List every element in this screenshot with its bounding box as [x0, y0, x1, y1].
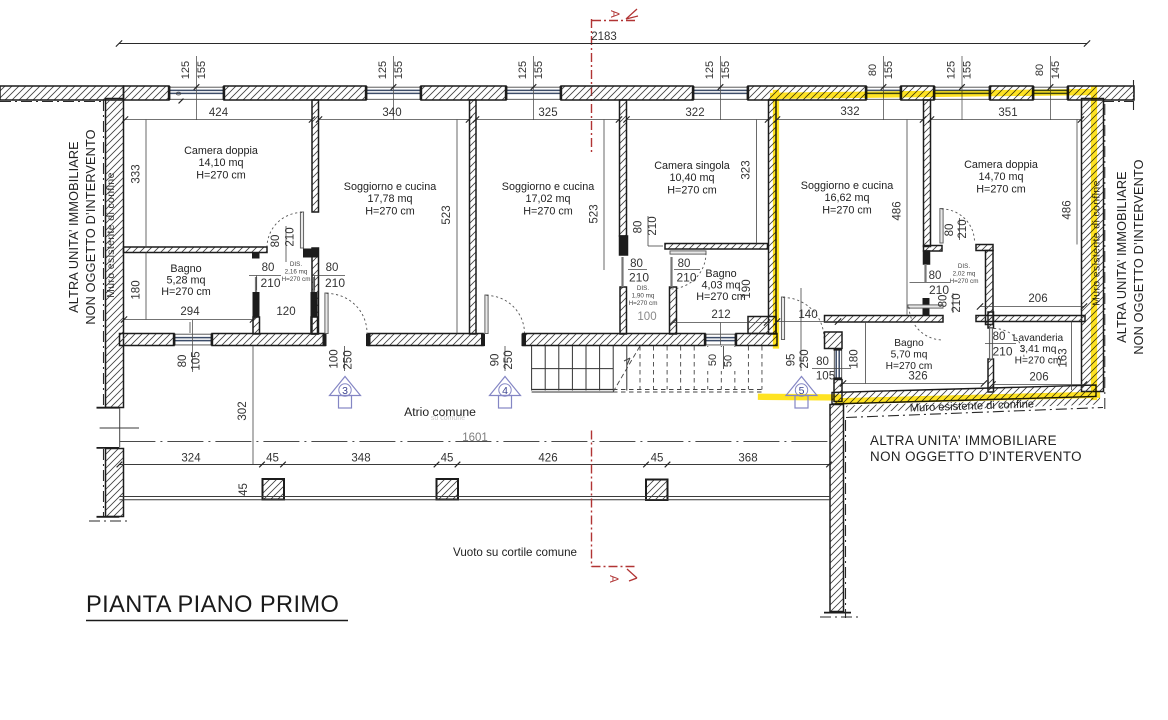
svg-text:10,40 mq: 10,40 mq: [669, 172, 714, 184]
svg-text:155: 155: [720, 61, 732, 79]
svg-text:80: 80: [326, 262, 339, 274]
svg-text:45: 45: [266, 453, 279, 465]
svg-text:340: 340: [382, 107, 401, 119]
svg-text:80: 80: [262, 262, 275, 274]
svg-text:155: 155: [962, 61, 974, 79]
svg-text:H=270 cm: H=270 cm: [365, 205, 415, 217]
svg-text:105: 105: [191, 351, 203, 370]
svg-text:210: 210: [951, 293, 963, 312]
svg-text:80: 80: [633, 221, 645, 234]
svg-text:Camera doppia: Camera doppia: [964, 159, 1038, 171]
svg-text:323: 323: [741, 160, 753, 179]
svg-text:Soggiorno e cucina: Soggiorno e cucina: [344, 181, 436, 193]
svg-text:H=270 cm: H=270 cm: [196, 169, 246, 181]
svg-text:Muro esistente di confine: Muro esistente di confine: [106, 172, 117, 298]
svg-text:5,28 mq: 5,28 mq: [166, 275, 205, 287]
svg-text:206: 206: [1028, 293, 1047, 305]
svg-text:su comune: su comune: [431, 415, 465, 422]
svg-text:16,62 mq: 16,62 mq: [824, 192, 869, 204]
svg-text:Soggiorno e cucina: Soggiorno e cucina: [502, 181, 594, 193]
svg-text:145: 145: [1050, 61, 1062, 79]
svg-text:ALTRA UNITA’ IMMOBILIARE: ALTRA UNITA’ IMMOBILIARE: [67, 141, 81, 313]
svg-text:H=270 cm: H=270 cm: [667, 184, 717, 196]
svg-text:50: 50: [707, 354, 719, 366]
svg-text:424: 424: [209, 107, 229, 119]
svg-text:Lavanderia: Lavanderia: [1013, 333, 1064, 344]
svg-text:426: 426: [538, 453, 557, 465]
svg-text:NON OGGETTO D’INTERVENTO: NON OGGETTO D’INTERVENTO: [84, 129, 98, 324]
svg-text:45: 45: [441, 453, 454, 465]
svg-text:105: 105: [816, 371, 835, 383]
svg-text:210: 210: [957, 219, 969, 238]
svg-text:180: 180: [131, 280, 143, 299]
svg-text:PIANTA PIANO PRIMO: PIANTA PIANO PRIMO: [86, 592, 339, 618]
svg-text:Soggiorno e cucina: Soggiorno e cucina: [801, 180, 893, 192]
svg-text:80: 80: [944, 224, 956, 237]
svg-text:80: 80: [630, 258, 643, 270]
svg-text:80: 80: [938, 295, 950, 308]
svg-text:155: 155: [533, 61, 545, 79]
svg-text:Camera singola: Camera singola: [654, 160, 730, 172]
svg-text:95: 95: [786, 354, 798, 367]
svg-text:155: 155: [393, 61, 405, 79]
svg-text:H=270 cm: H=270 cm: [696, 291, 746, 303]
svg-text:A: A: [607, 575, 619, 583]
svg-text:80: 80: [177, 355, 189, 368]
svg-text:324: 324: [181, 453, 201, 465]
svg-text:180: 180: [849, 349, 861, 368]
svg-text:DIS.: DIS.: [958, 263, 970, 270]
svg-text:14,70 mq: 14,70 mq: [978, 171, 1023, 183]
svg-text:H=270 cm: H=270 cm: [282, 276, 311, 283]
svg-text:210: 210: [325, 276, 345, 290]
svg-text:H=270 cm: H=270 cm: [629, 300, 658, 307]
svg-text:45: 45: [238, 483, 250, 496]
svg-text:45: 45: [651, 453, 664, 465]
svg-text:50: 50: [723, 355, 735, 367]
svg-text:100: 100: [637, 311, 656, 323]
svg-text:250: 250: [799, 349, 811, 368]
svg-text:3: 3: [342, 385, 348, 397]
svg-text:125: 125: [377, 61, 389, 79]
svg-text:325: 325: [538, 107, 557, 119]
svg-text:ALTRA UNITA’ IMMOBILIARE: ALTRA UNITA’ IMMOBILIARE: [1115, 171, 1129, 343]
svg-text:2,16 mq: 2,16 mq: [285, 269, 308, 276]
svg-text:332: 332: [840, 106, 859, 118]
svg-text:120: 120: [276, 306, 295, 318]
svg-text:206: 206: [1029, 372, 1048, 384]
svg-text:163: 163: [1058, 348, 1070, 367]
svg-text:486: 486: [1062, 200, 1074, 219]
svg-text:2183: 2183: [591, 31, 617, 43]
svg-text:326: 326: [908, 371, 927, 383]
svg-text:523: 523: [589, 204, 601, 223]
svg-text:H=270 cm: H=270 cm: [822, 204, 872, 216]
svg-text:0: 0: [174, 91, 183, 95]
svg-text:210: 210: [992, 345, 1012, 359]
svg-text:125: 125: [946, 61, 958, 79]
svg-text:212: 212: [711, 309, 730, 321]
svg-text:14,10 mq: 14,10 mq: [198, 157, 243, 169]
svg-text:155: 155: [196, 61, 208, 79]
svg-text:H=270 cm: H=270 cm: [523, 205, 573, 217]
svg-text:5: 5: [799, 385, 805, 397]
svg-text:80: 80: [816, 356, 829, 368]
svg-text:210: 210: [260, 276, 280, 290]
svg-text:351: 351: [998, 107, 1017, 119]
svg-text:294: 294: [180, 306, 200, 318]
svg-text:H=270 cm: H=270 cm: [161, 286, 211, 298]
svg-text:4: 4: [502, 385, 508, 397]
svg-text:140: 140: [798, 309, 817, 321]
svg-text:210: 210: [629, 271, 649, 285]
svg-text:Vuoto su cortile comune: Vuoto su cortile comune: [453, 546, 577, 559]
svg-text:80: 80: [678, 258, 691, 270]
svg-text:368: 368: [738, 453, 757, 465]
svg-text:1,90 mq: 1,90 mq: [632, 293, 655, 300]
svg-text:210: 210: [285, 227, 297, 246]
svg-text:125: 125: [704, 61, 716, 79]
svg-text:210: 210: [647, 216, 659, 235]
svg-text:322: 322: [685, 107, 704, 119]
svg-text:5,70 mq: 5,70 mq: [891, 350, 928, 361]
svg-text:NON OGGETTO D’INTERVENTO: NON OGGETTO D’INTERVENTO: [1132, 159, 1146, 354]
svg-text:80: 80: [867, 64, 879, 76]
svg-text:80: 80: [993, 331, 1006, 343]
svg-text:302: 302: [237, 401, 249, 420]
svg-text:DIS.: DIS.: [637, 285, 649, 292]
svg-text:A: A: [608, 10, 620, 18]
svg-text:80: 80: [929, 270, 942, 282]
svg-text:H=270 cm: H=270 cm: [976, 183, 1026, 195]
svg-text:90: 90: [490, 354, 502, 367]
svg-text:2,02 mq: 2,02 mq: [953, 271, 976, 278]
svg-text:348: 348: [351, 453, 370, 465]
svg-text:Bagno: Bagno: [894, 338, 924, 349]
svg-text:125: 125: [180, 61, 192, 79]
svg-text:17,78 mq: 17,78 mq: [367, 193, 412, 205]
svg-text:523: 523: [441, 205, 453, 224]
svg-text:3,41 mq: 3,41 mq: [1020, 344, 1057, 355]
svg-text:1601: 1601: [462, 432, 488, 444]
svg-text:H=270 cm: H=270 cm: [950, 278, 979, 285]
svg-text:Camera doppia: Camera doppia: [184, 145, 258, 157]
svg-text:ALTRA UNITA’ IMMOBILIARE: ALTRA UNITA’ IMMOBILIARE: [870, 433, 1057, 448]
svg-text:80: 80: [1034, 64, 1046, 76]
svg-text:H=270 cm: H=270 cm: [1015, 355, 1062, 366]
svg-text:17,02 mq: 17,02 mq: [525, 193, 570, 205]
svg-text:DIS.: DIS.: [290, 261, 302, 268]
svg-text:250: 250: [503, 350, 515, 369]
svg-text:190: 190: [741, 279, 753, 298]
svg-text:Bagno: Bagno: [705, 268, 736, 280]
svg-text:NON OGGETTO D’INTERVENTO: NON OGGETTO D’INTERVENTO: [870, 449, 1082, 464]
svg-text:333: 333: [131, 164, 143, 183]
svg-text:80: 80: [270, 235, 282, 248]
svg-text:250: 250: [343, 350, 355, 369]
svg-text:100: 100: [329, 349, 341, 368]
svg-text:210: 210: [676, 271, 696, 285]
svg-text:125: 125: [517, 61, 529, 79]
svg-text:Bagno: Bagno: [170, 263, 201, 275]
svg-text:486: 486: [892, 201, 904, 220]
svg-text:155: 155: [883, 61, 895, 79]
svg-text:4,03 mq: 4,03 mq: [701, 280, 740, 292]
